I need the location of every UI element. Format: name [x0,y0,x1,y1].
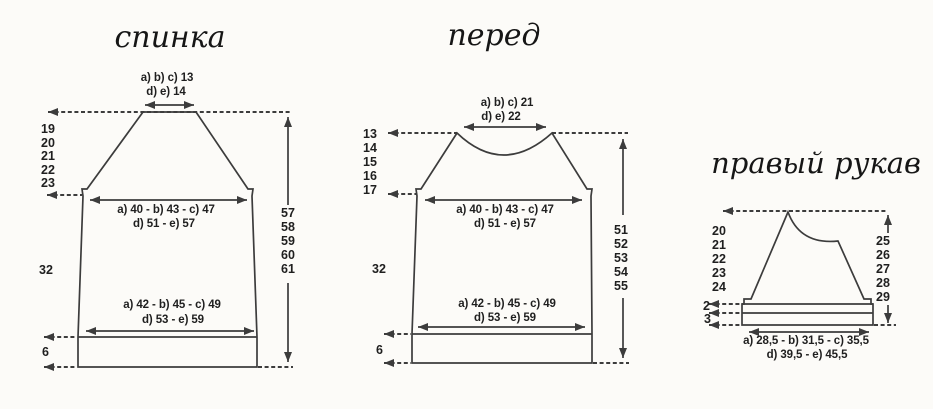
front-raglan-depth-c: 15 [363,155,377,169]
front-total-length-c: 53 [614,251,628,265]
back-title: спинка [114,21,225,54]
back-total-length-c: 59 [281,234,295,248]
front-neck-width-de: d) e) 22 [481,111,520,124]
front-total-length-e: 55 [614,279,628,293]
front-raglan-depth-d: 16 [363,169,377,183]
back-chest-width-abc: a) 40 - b) 43 - c) 47 [117,204,215,217]
front-total-length-b: 52 [614,237,628,251]
front-raglan-depth-e: 17 [363,183,377,197]
front-total-length-a: 51 [614,223,628,237]
sleeve-cap-depth-b: 21 [712,238,726,252]
sleeve-upper-lengths: 25 26 27 28 29 [876,234,890,304]
sleeve-cap-depths: 20 21 22 23 24 [712,224,726,294]
sleeve-title: правый рукав [711,148,921,180]
sleeve-upper-length-e: 29 [876,290,890,304]
front-piece-outline [412,133,592,363]
back-total-length-a: 57 [281,206,295,220]
front-rib-height: 6 [376,343,383,357]
front-total-length-d: 54 [614,265,628,279]
back-armhole-depth-e: 23 [41,177,55,191]
sleeve-cap-depth-a: 20 [712,224,726,238]
back-piece-outline [78,112,257,367]
front-hem-width-de: d) 53 - e) 59 [474,312,536,325]
front-hem-width-abc: a) 42 - b) 45 - c) 49 [458,298,556,311]
back-total-length-b: 58 [281,220,295,234]
back-total-length-e: 61 [281,262,295,276]
sleeve-cap-depth-e: 24 [712,280,726,294]
sleeve-measure-arrows [749,215,888,332]
sleeve-piece-outline [742,212,873,325]
back-shoulder-width-de: d) e) 14 [146,86,185,99]
front-neck-width-abc: a) b) c) 21 [481,97,534,110]
sleeve-cuff-band-height: 3 [704,312,711,326]
back-total-length-d: 60 [281,248,295,262]
sleeve-cap-depth-c: 22 [712,252,726,266]
sleeve-upper-length-b: 26 [876,248,890,262]
sleeve-upper-length-a: 25 [876,234,890,248]
sleeve-cuff-width-de: d) 39,5 - e) 45,5 [767,349,848,362]
sleeve-upper-length-c: 27 [876,262,890,276]
front-total-lengths: 51 52 53 54 55 [614,223,628,293]
front-side-length: 32 [372,262,386,276]
back-armhole-depth-a: 19 [41,123,55,137]
back-hem-width-abc: a) 42 - b) 45 - c) 49 [123,299,221,312]
front-chest-width-de: d) 51 - e) 57 [474,218,536,231]
back-armhole-depth-c: 21 [41,150,55,164]
back-side-length: 32 [39,263,53,277]
back-chest-width-de: d) 51 - e) 57 [133,218,195,231]
back-armhole-depths: 19 20 21 22 23 [41,123,55,191]
back-armhole-depth-b: 20 [41,137,55,151]
front-raglan-depth-a: 13 [363,127,377,141]
knitting-pattern-sheet: спинка a) b) c) 13 d) e) 14 19 20 21 22 … [0,0,933,409]
sleeve-cap-depth-d: 23 [712,266,726,280]
back-total-lengths: 57 58 59 60 61 [281,206,295,276]
back-armhole-depth-d: 22 [41,164,55,178]
sleeve-cuff-width-abc: a) 28,5 - b) 31,5 - c) 35,5 [743,335,869,348]
sleeve-dashed-guides [709,211,896,325]
sleeve-lower-band-height: 2 [703,299,710,313]
back-rib-height: 6 [42,345,49,359]
back-hem-width-de: d) 53 - e) 59 [142,314,204,327]
front-title: перед [447,19,540,52]
sleeve-upper-length-d: 28 [876,276,890,290]
front-raglan-depths: 13 14 15 16 17 [363,127,377,197]
back-shoulder-width-abc: a) b) c) 13 [141,72,194,85]
front-chest-width-abc: a) 40 - b) 43 - c) 47 [456,204,554,217]
front-raglan-depth-b: 14 [363,141,377,155]
